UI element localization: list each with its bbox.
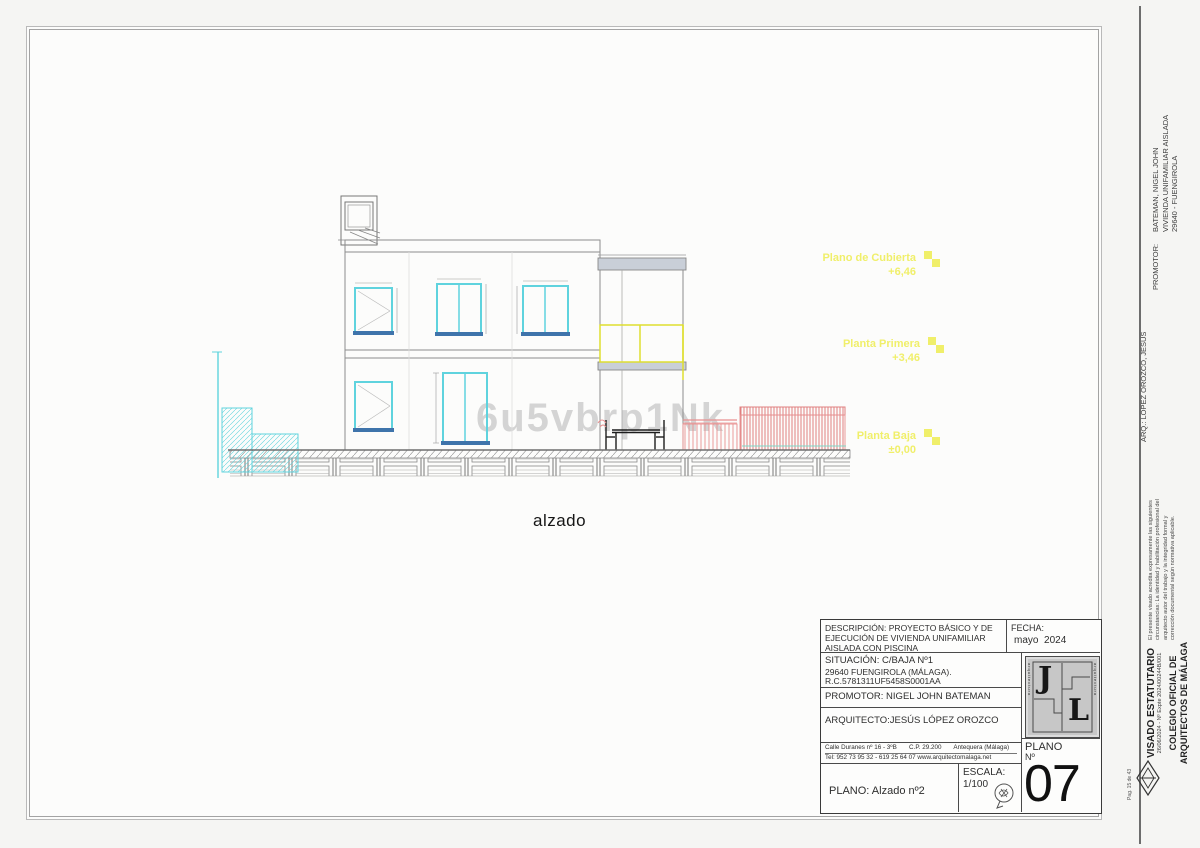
terrace-door — [433, 373, 490, 445]
divider — [821, 763, 1021, 764]
descripcion-line: DESCRIPCIÓN: PROYECTO BÁSICO Y DE — [825, 623, 993, 633]
level-marker-roof: Plano de Cubierta +6,46 — [822, 251, 940, 278]
divider — [821, 687, 1021, 688]
divider — [821, 707, 1021, 708]
logo-side-text: arquitectura — [1093, 663, 1098, 696]
margin-arq-line: ARQ.: LOPEZ OROZCO, JESUS — [1139, 322, 1148, 442]
level-marker-ground-floor: Planta Baja ±0,00 — [857, 429, 940, 456]
colegio-block: COLEGIO OFICIAL DE ARQUITECTOS DE MÁLAGA — [1168, 633, 1189, 773]
window-3 — [517, 281, 570, 336]
promotor-row: PROMOTOR: NIGEL JOHN BATEMAN — [825, 691, 991, 702]
lower-openings — [353, 373, 490, 445]
logo-letter-j: J — [1038, 661, 1052, 696]
svg-text:+3,46: +3,46 — [892, 352, 920, 364]
ground-band — [230, 450, 850, 476]
plano-name: PLANO: Alzado nº2 — [829, 785, 925, 797]
escala-label: ESCALA: — [963, 767, 1005, 778]
stamp-icon — [989, 780, 1017, 810]
margin-promotor-label: PROMOTOR: — [1151, 232, 1161, 290]
svg-text:Plano de Cubierta: Plano de Cubierta — [822, 252, 916, 264]
level-marker-first-floor: Planta Primera +3,46 — [843, 337, 944, 364]
jl-logo: arquitectura arquitectura J L — [1025, 656, 1100, 738]
plano-number: 07 — [1024, 754, 1080, 814]
window-2 — [435, 279, 486, 336]
fecha-label: FECHA: — [1011, 623, 1044, 633]
logo-letter-l: L — [1068, 693, 1089, 728]
colegio-line: COLEGIO OFICIAL DE — [1168, 633, 1179, 773]
window-1 — [353, 283, 397, 335]
fecha-value: mayo 2024 — [1014, 635, 1066, 646]
studio-address: Calle Duranes nº 16 - 3ºB C.P. 29.200 An… — [825, 744, 1017, 751]
visado-note-line: circunstancias: La identidad y habilitac… — [1155, 500, 1162, 640]
descripcion-line: EJECUCIÓN DE VIVIENDA UNIFAMILIAR — [825, 633, 993, 643]
elevation-drawing: Plano de Cubierta +6,46 Planta Primera +… — [200, 175, 980, 545]
margin-promotor-name: BATEMAN, NIGEL JOHN — [1151, 147, 1160, 232]
divider — [958, 763, 959, 812]
visado-note-line: arquitecto autor del trabajo y la integr… — [1163, 500, 1170, 640]
visado-note-line: corrección documental según normativa ap… — [1170, 500, 1177, 640]
level-symbol-icon — [924, 251, 940, 267]
porch-furniture — [598, 420, 664, 450]
visado-note-block: El presente visado acredita expresamente… — [1148, 500, 1178, 640]
page-note: Pag. 15 de 43 — [1127, 758, 1133, 800]
colegio-line: ARQUITECTOS DE MÁLAGA — [1179, 633, 1190, 773]
svg-text:±0,00: ±0,00 — [889, 444, 916, 456]
visado-title-block: VISADO ESTATUTARIO 26/06/2024 - Nº Expte… — [1146, 633, 1163, 773]
level-symbol-icon — [928, 337, 944, 353]
divider — [821, 742, 1021, 743]
roof-tower — [338, 196, 380, 245]
escala-value: 1/100 — [963, 779, 988, 790]
descripcion-line: AISLADA CON PISCINA — [825, 643, 993, 653]
visado-expte: 26/06/2024 - Nº Expte 2024/00244B/001 — [1157, 633, 1163, 773]
situacion-line: SITUACIÓN: C/BAJA Nº1 — [825, 655, 933, 666]
window-4 — [353, 382, 394, 432]
upper-windows — [353, 279, 570, 336]
divider — [1021, 738, 1100, 739]
visado-title: VISADO ESTATUTARIO — [1146, 633, 1157, 773]
terrace-wing — [598, 255, 686, 450]
plan-page: { "sheet": { "drawing_label": "alzado", … — [0, 0, 1200, 848]
drawing-caption: alzado — [533, 511, 586, 531]
level-symbol-icon — [924, 429, 940, 445]
pink-fence-large — [740, 407, 846, 450]
margin-promotor-line: VIVIENDA UNIFAMILIAR AISLADA — [1161, 115, 1171, 232]
building-outline — [345, 240, 600, 450]
pink-fence-small — [683, 420, 737, 450]
divider — [1021, 652, 1022, 812]
divider — [1006, 620, 1007, 652]
svg-text:Planta Primera: Planta Primera — [843, 338, 921, 350]
situacion-line: R.C.5781311UF5458S0001AA — [825, 676, 941, 686]
retaining-wall — [212, 352, 298, 478]
arquitecto-row: ARQUITECTO:JESÚS LÓPEZ OROZCO — [825, 715, 999, 726]
svg-text:Planta Baja: Planta Baja — [857, 430, 917, 442]
margin-promotor-line: 29640 - FUENGIROLA — [1170, 115, 1180, 232]
glass-balustrade — [600, 325, 683, 380]
margin-promotor-block: PROMOTOR:BATEMAN, NIGEL JOHN VIVIENDA UN… — [1151, 115, 1180, 290]
coa-malaga-logo-icon — [1136, 760, 1160, 796]
svg-text:+6,46: +6,46 — [888, 266, 916, 278]
visado-note-line: El presente visado acredita expresamente… — [1148, 500, 1155, 640]
studio-phone: Tel: 952 73 95 32 - 619 25 64 07 www.arq… — [825, 753, 1017, 761]
title-block: DESCRIPCIÓN: PROYECTO BÁSICO Y DE EJECUC… — [820, 619, 1102, 814]
